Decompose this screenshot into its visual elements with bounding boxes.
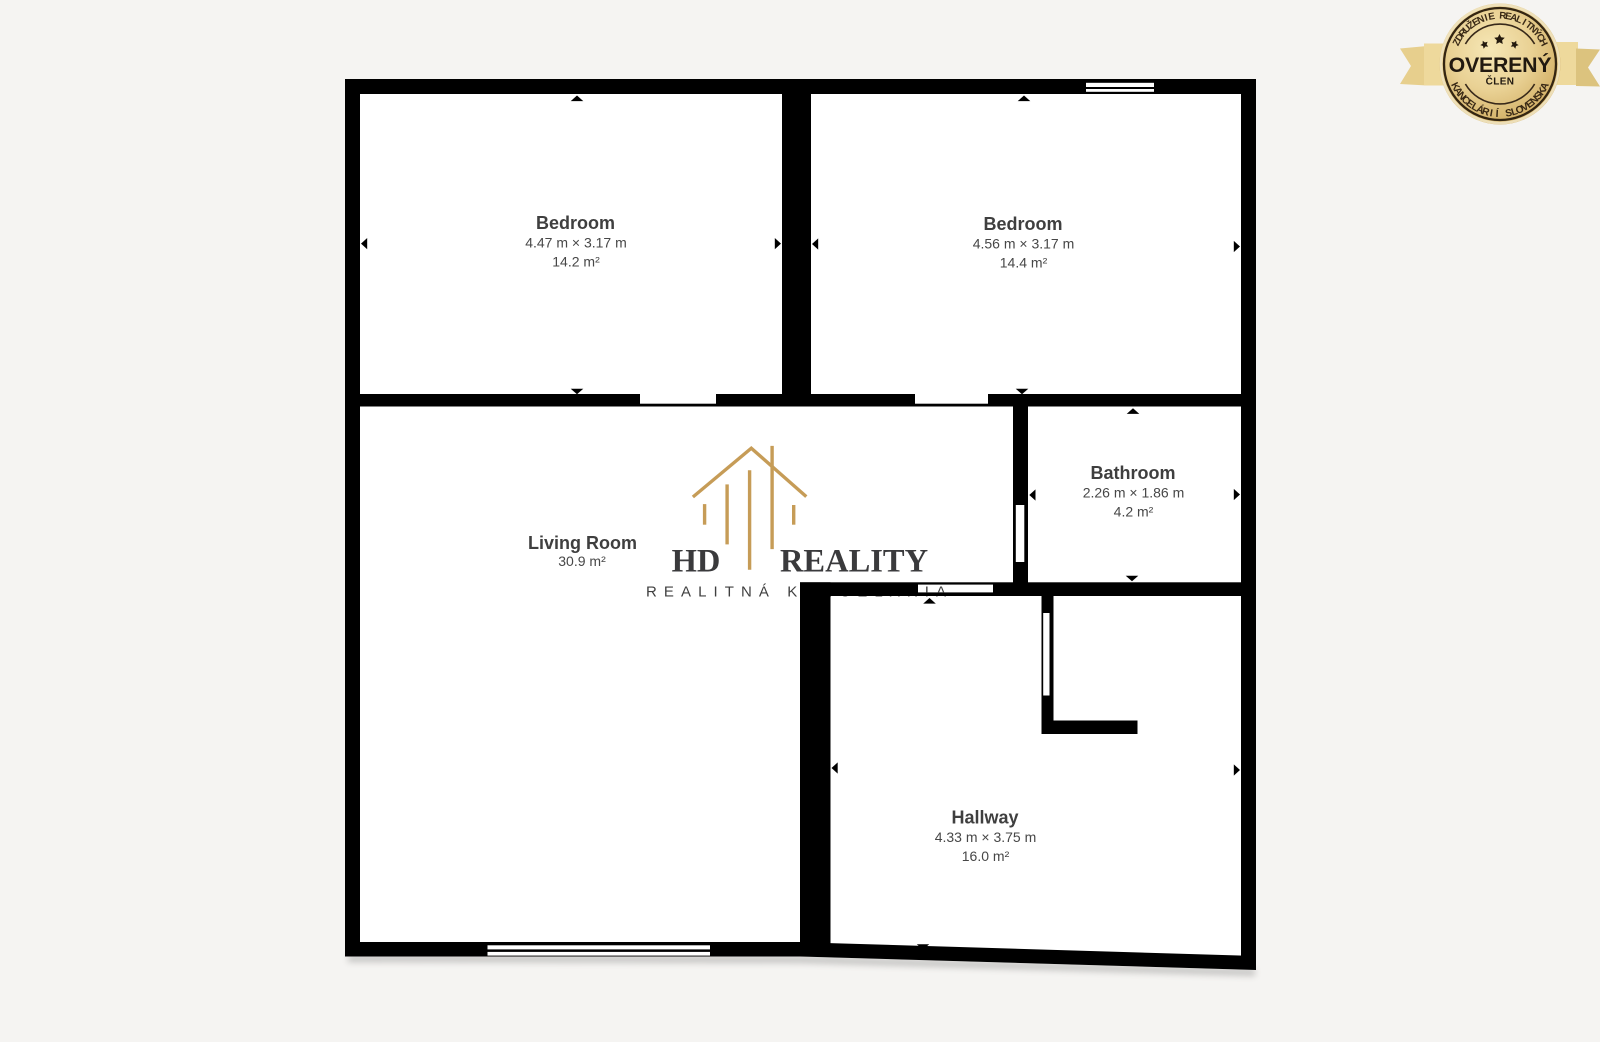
svg-text:HD: HD xyxy=(672,544,721,580)
svg-text:4.2 m²: 4.2 m² xyxy=(1114,504,1154,520)
svg-text:14.2 m²: 14.2 m² xyxy=(552,254,600,270)
svg-text:Hallway: Hallway xyxy=(951,808,1018,828)
svg-text:Bedroom: Bedroom xyxy=(983,214,1062,234)
svg-text:4.33 m × 3.75 m: 4.33 m × 3.75 m xyxy=(935,829,1037,845)
svg-text:4.47 m × 3.17 m: 4.47 m × 3.17 m xyxy=(525,235,627,251)
svg-text:ČLEN: ČLEN xyxy=(1486,74,1515,87)
svg-text:2.26 m × 1.86 m: 2.26 m × 1.86 m xyxy=(1083,485,1185,501)
svg-text:30.9 m²: 30.9 m² xyxy=(558,553,606,569)
svg-text:Living Room: Living Room xyxy=(528,533,637,553)
svg-text:4.56 m × 3.17 m: 4.56 m × 3.17 m xyxy=(973,236,1075,252)
svg-text:OVERENÝ: OVERENÝ xyxy=(1449,52,1552,77)
svg-text:14.4 m²: 14.4 m² xyxy=(1000,255,1048,271)
svg-text:16.0 m²: 16.0 m² xyxy=(962,848,1010,864)
svg-text:Bathroom: Bathroom xyxy=(1091,463,1176,483)
svg-text:Bedroom: Bedroom xyxy=(536,213,615,233)
svg-text:REALITY: REALITY xyxy=(780,544,928,580)
